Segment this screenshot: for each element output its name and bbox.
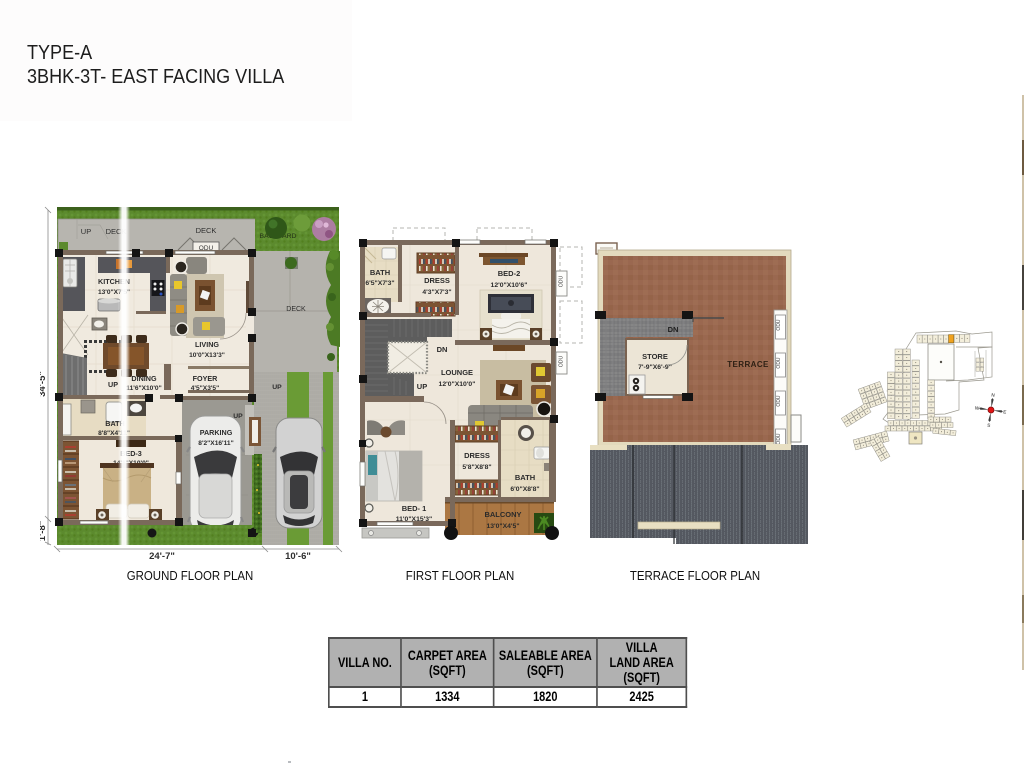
svg-text:24'-7": 24'-7" bbox=[149, 551, 175, 562]
svg-text:UP: UP bbox=[233, 413, 243, 420]
svg-text:UP: UP bbox=[272, 384, 282, 391]
svg-text:ODU: ODU bbox=[559, 355, 565, 367]
svg-text:8'2"X16'11": 8'2"X16'11" bbox=[198, 440, 233, 447]
svg-text:6'0"X8'8": 6'0"X8'8" bbox=[510, 486, 539, 493]
svg-text:E: E bbox=[1003, 409, 1008, 415]
svg-text:DINING: DINING bbox=[131, 374, 157, 383]
svg-text:10'0"X13'3": 10'0"X13'3" bbox=[189, 352, 225, 359]
svg-text:DECK: DECK bbox=[196, 226, 217, 235]
svg-text:13'0"X4'5": 13'0"X4'5" bbox=[486, 523, 519, 530]
svg-text:7'-9"X6'-9": 7'-9"X6'-9" bbox=[638, 364, 672, 371]
svg-text:5'8"X8'8": 5'8"X8'8" bbox=[462, 464, 491, 471]
svg-text:LOUNGE: LOUNGE bbox=[441, 368, 473, 377]
svg-text:DRESS: DRESS bbox=[464, 451, 490, 460]
svg-text:ODU: ODU bbox=[776, 395, 782, 407]
svg-text:DECK: DECK bbox=[286, 306, 306, 313]
svg-text:S: S bbox=[987, 423, 992, 429]
svg-text:12'0"X10'0": 12'0"X10'0" bbox=[439, 381, 476, 388]
svg-text:BALCONY: BALCONY bbox=[484, 510, 521, 519]
svg-text:UP: UP bbox=[81, 227, 91, 236]
svg-text:ODU: ODU bbox=[776, 357, 782, 369]
svg-text:PARKING: PARKING bbox=[200, 428, 233, 437]
svg-text:UP: UP bbox=[417, 382, 427, 391]
svg-text:ODU: ODU bbox=[559, 275, 565, 287]
svg-text:10'-6": 10'-6" bbox=[285, 551, 311, 562]
svg-text:DN: DN bbox=[437, 345, 448, 354]
svg-text:LIVING: LIVING bbox=[195, 340, 219, 349]
svg-text:STORE: STORE bbox=[642, 352, 668, 361]
svg-text:TERRACE: TERRACE bbox=[727, 360, 769, 369]
svg-text:BATH: BATH bbox=[370, 268, 390, 277]
svg-text:6'5"X7'3": 6'5"X7'3" bbox=[365, 280, 394, 287]
svg-text:ODU: ODU bbox=[776, 319, 782, 331]
svg-text:W: W bbox=[974, 405, 980, 412]
svg-text:ODU: ODU bbox=[776, 433, 782, 445]
svg-text:34'-5": 34'-5" bbox=[40, 371, 48, 397]
svg-text:BATH: BATH bbox=[515, 473, 535, 482]
svg-text:N: N bbox=[991, 392, 996, 398]
svg-text:12'0"X10'6": 12'0"X10'6" bbox=[491, 282, 528, 289]
svg-text:1'-8": 1'-8" bbox=[40, 521, 48, 542]
svg-text:DN: DN bbox=[668, 325, 679, 334]
svg-text:BED- 1: BED- 1 bbox=[402, 504, 427, 513]
svg-text:UP: UP bbox=[108, 380, 118, 389]
svg-text:BED-2: BED-2 bbox=[498, 269, 521, 278]
svg-text:DRESS: DRESS bbox=[424, 276, 450, 285]
svg-text:4'3"X7'3": 4'3"X7'3" bbox=[422, 289, 451, 296]
svg-text:FOYER: FOYER bbox=[193, 374, 219, 383]
svg-text:11'6"X10'0": 11'6"X10'0" bbox=[126, 385, 161, 392]
